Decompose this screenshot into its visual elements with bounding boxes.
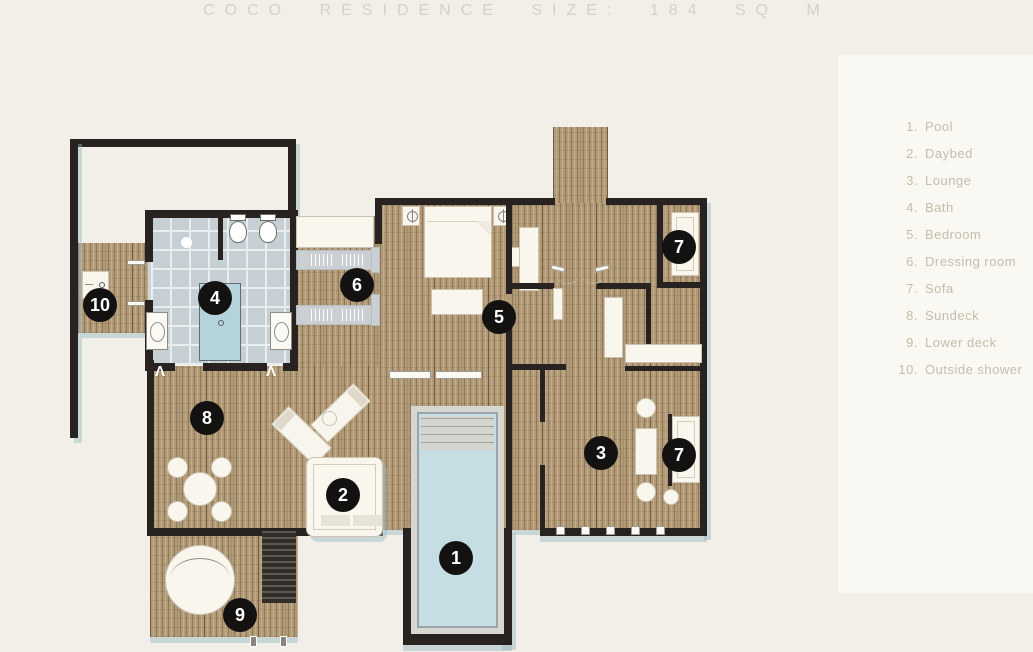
lounge-wall-bottom [540, 528, 707, 536]
pool [417, 412, 498, 628]
exterior-wall-top [375, 198, 555, 205]
lounge-wall-left [540, 370, 545, 422]
shelf [371, 247, 380, 273]
door-leaf [127, 260, 145, 265]
sheet-fold [477, 221, 491, 235]
bathroom-wall-bottom [283, 363, 298, 371]
sink [146, 312, 168, 350]
round-daybed [165, 545, 235, 615]
hall-wall [596, 283, 648, 289]
ottoman [636, 398, 656, 418]
floor-plan: Λ Λ [0, 0, 1033, 652]
marker-pool: 1 [439, 541, 473, 575]
drain-icon [218, 320, 224, 326]
side-table [322, 411, 337, 426]
marker-sundeck: 8 [190, 401, 224, 435]
hanger-icons [342, 254, 364, 266]
pool-steps [421, 416, 494, 450]
shower-head-icon [181, 237, 192, 248]
daybed-arc [170, 558, 230, 599]
courtyard-wall-right [288, 139, 296, 218]
marker-daybed: 2 [326, 478, 360, 512]
marker-lounge: 3 [584, 436, 618, 470]
bathroom-wall-bottom [203, 363, 267, 371]
nightstand [402, 206, 420, 226]
window [389, 371, 431, 379]
window-marker [631, 526, 640, 535]
daybed-pillow [321, 515, 350, 526]
hanger-icons [311, 309, 333, 321]
hall-wardrobe [604, 297, 623, 358]
dining-table [183, 472, 217, 506]
side-stool [663, 489, 679, 505]
marker-outside-shower: 10 [83, 288, 117, 322]
window [435, 371, 482, 379]
window-marker [581, 526, 590, 535]
dining-chair [211, 501, 232, 522]
hanger-icons [342, 309, 364, 321]
hall-wall [512, 283, 554, 289]
console [511, 247, 520, 267]
bench [431, 289, 483, 315]
toilet [228, 214, 248, 244]
hall-wall [646, 283, 651, 349]
marker-sofa-top: 7 [662, 230, 696, 264]
lamp-icon [407, 211, 418, 222]
window-marker [606, 526, 615, 535]
hall-console [625, 344, 702, 363]
console [519, 227, 539, 291]
dining-chair [211, 457, 232, 478]
shelf [371, 294, 380, 326]
bathroom-wall-left [145, 210, 153, 262]
hall-wall [512, 364, 566, 370]
wardrobe [296, 305, 376, 325]
courtyard-wall-left [70, 139, 78, 438]
marker-dressing-room: 6 [340, 268, 374, 302]
sundeck-wall-left [147, 360, 154, 536]
door-swing-mark: Λ [266, 363, 276, 380]
hall-shelf [553, 288, 563, 320]
coffee-table [635, 428, 657, 475]
marker-bedroom: 5 [482, 300, 516, 334]
lounge-wall-left [540, 465, 545, 528]
marker-sofa-bottom: 7 [662, 438, 696, 472]
dining-chair [167, 457, 188, 478]
vanity-counter [296, 216, 374, 248]
hanger-icons [311, 254, 333, 266]
hall-wall [625, 366, 702, 371]
bathroom-divider-wall [218, 210, 223, 260]
marker-bath: 4 [198, 281, 232, 315]
door-leaf [127, 301, 145, 306]
sink [270, 312, 292, 350]
window-marker [556, 526, 565, 535]
dining-chair [167, 501, 188, 522]
stairs [262, 531, 296, 603]
entrance-walkway-deck [553, 127, 608, 205]
bed [424, 206, 492, 278]
floor-plan-page: COCO RESIDENCE SIZE: 184 SQ M 1.Pool 2.D… [0, 0, 1033, 652]
deck-post [250, 636, 257, 647]
courtyard-wall-top [70, 139, 296, 147]
marker-lower-deck: 9 [223, 598, 257, 632]
window-marker [656, 526, 665, 535]
door-swing-mark: Λ [155, 363, 165, 380]
sofa-room-wall-bottom [657, 282, 707, 288]
ottoman [636, 482, 656, 502]
deck-post [280, 636, 287, 647]
toilet [258, 214, 278, 244]
daybed-pillow [353, 515, 382, 526]
wardrobe [296, 250, 376, 270]
